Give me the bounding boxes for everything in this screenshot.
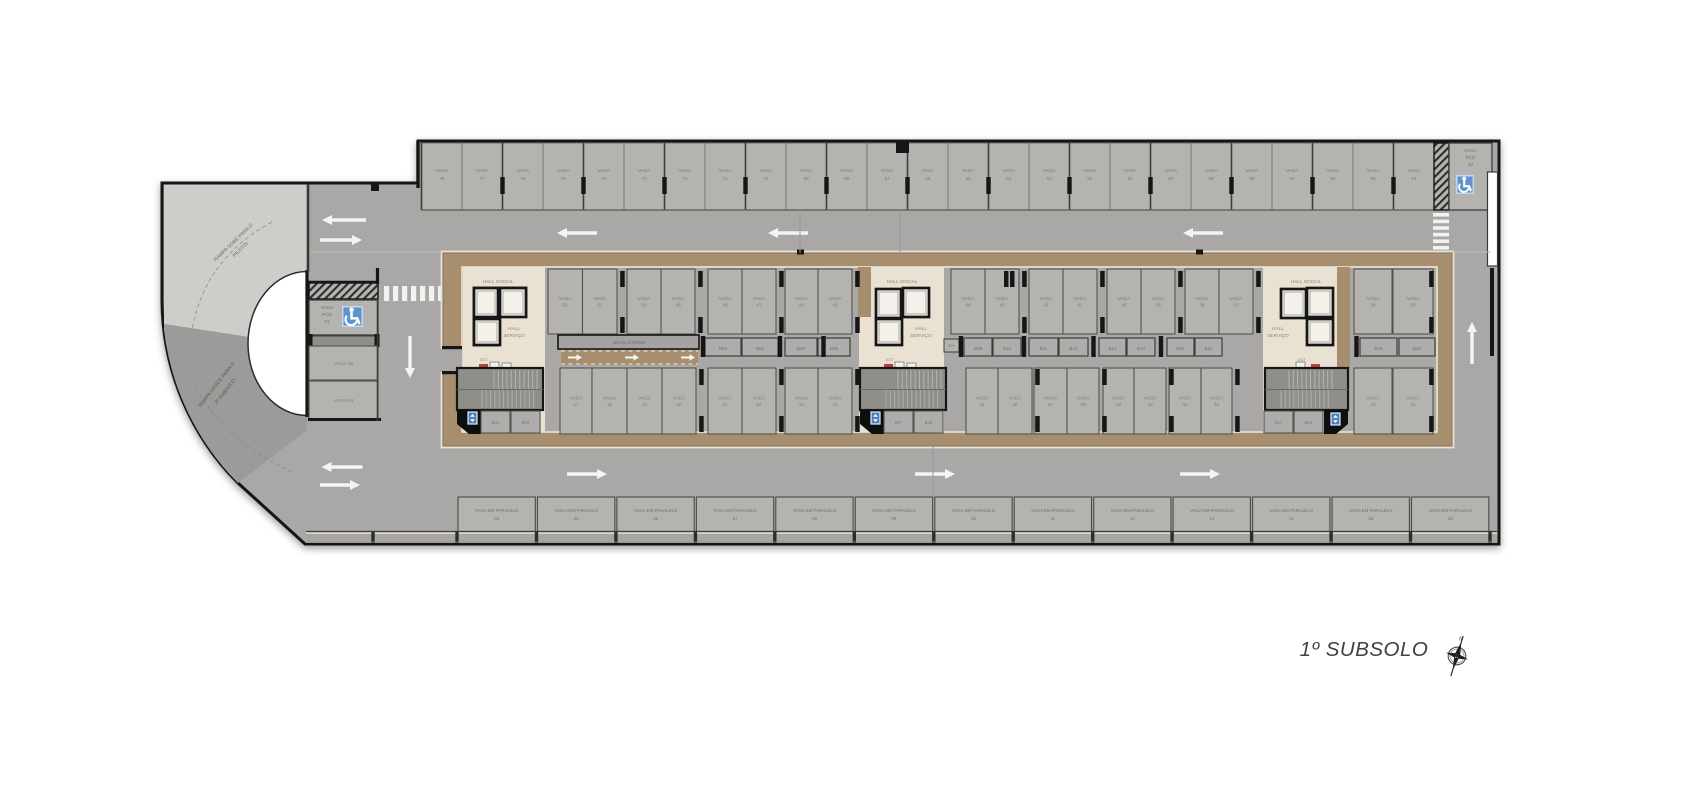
- svg-text:65: 65: [966, 176, 972, 181]
- svg-text:34: 34: [1410, 402, 1416, 407]
- svg-text:B15: B15: [1176, 346, 1185, 351]
- svg-text:VAGA: VAGA: [795, 396, 809, 401]
- svg-text:40: 40: [1121, 303, 1127, 308]
- svg-text:35: 35: [1410, 303, 1416, 308]
- svg-text:VAGA: VAGA: [1407, 396, 1421, 401]
- svg-text:B12: B12: [1069, 346, 1078, 351]
- svg-text:VAGA: VAGA: [795, 296, 809, 301]
- svg-text:24: 24: [832, 402, 838, 407]
- svg-text:VAGA: VAGA: [800, 168, 814, 173]
- svg-text:55: 55: [1371, 176, 1377, 181]
- svg-text:62: 62: [1087, 176, 1093, 181]
- svg-text:27: 27: [1048, 402, 1054, 407]
- svg-text:VAGA 03: VAGA 03: [334, 398, 354, 404]
- svg-text:21: 21: [722, 402, 728, 407]
- svg-text:01: 01: [324, 319, 330, 324]
- svg-text:11: 11: [1051, 516, 1056, 521]
- svg-text:VAGA: VAGA: [1083, 168, 1097, 173]
- svg-text:VAGA: VAGA: [476, 168, 490, 173]
- svg-text:39: 39: [1155, 303, 1161, 308]
- svg-text:BICICLETÁRIO: BICICLETÁRIO: [613, 339, 645, 345]
- svg-text:HALL SOCIAL: HALL SOCIAL: [1291, 279, 1322, 285]
- svg-text:VAGA: VAGA: [1112, 396, 1126, 401]
- svg-text:59: 59: [1209, 176, 1215, 181]
- svg-text:77: 77: [480, 176, 486, 181]
- svg-text:VAGA: VAGA: [1118, 296, 1132, 301]
- svg-text:VAGA: VAGA: [719, 396, 733, 401]
- svg-text:41: 41: [1077, 303, 1083, 308]
- svg-text:VAGA: VAGA: [1077, 396, 1091, 401]
- svg-text:VAGA: VAGA: [1205, 168, 1219, 173]
- svg-text:25: 25: [979, 402, 985, 407]
- svg-text:VAGA EM PARALELO: VAGA EM PARALELO: [952, 508, 996, 513]
- svg-text:VAGA: VAGA: [1367, 396, 1381, 401]
- svg-text:SPK: SPK: [948, 344, 956, 348]
- svg-text:VAGA: VAGA: [829, 296, 843, 301]
- svg-text:VAGA: VAGA: [638, 296, 652, 301]
- svg-text:22: 22: [756, 402, 762, 407]
- svg-text:60: 60: [1168, 176, 1174, 181]
- svg-text:61: 61: [1128, 176, 1134, 181]
- svg-text:SERVIÇO: SERVIÇO: [503, 333, 525, 339]
- svg-text:HALL SOCIAL: HALL SOCIAL: [483, 279, 514, 285]
- svg-text:B18: B18: [1305, 420, 1313, 425]
- svg-text:12: 12: [1130, 516, 1135, 521]
- svg-text:VAGA: VAGA: [1245, 168, 1259, 173]
- svg-text:B11: B11: [1040, 346, 1048, 351]
- svg-text:ECT: ECT: [1298, 358, 1306, 362]
- svg-text:71: 71: [723, 176, 729, 181]
- svg-text:VAGA EM PARALELO: VAGA EM PARALELO: [634, 508, 678, 513]
- svg-text:VAGA EM PARALELO: VAGA EM PARALELO: [1270, 508, 1314, 513]
- svg-text:VAGA: VAGA: [1144, 396, 1158, 401]
- svg-text:VAGA: VAGA: [1044, 396, 1058, 401]
- svg-text:VAGA: VAGA: [719, 168, 733, 173]
- svg-text:VAGA: VAGA: [673, 396, 687, 401]
- svg-text:13: 13: [1209, 516, 1214, 521]
- svg-text:37: 37: [1233, 303, 1239, 308]
- svg-text:78: 78: [439, 176, 445, 181]
- svg-text:42: 42: [1043, 303, 1049, 308]
- svg-text:VAGA: VAGA: [962, 168, 976, 173]
- svg-text:B06: B06: [830, 346, 839, 351]
- svg-text:54: 54: [1411, 176, 1417, 181]
- svg-text:18: 18: [607, 402, 613, 407]
- svg-text:VAGA EM PARALELO: VAGA EM PARALELO: [1111, 508, 1155, 513]
- svg-text:B20: B20: [1413, 346, 1422, 351]
- svg-text:70: 70: [763, 176, 769, 181]
- svg-text:51: 51: [597, 303, 603, 308]
- svg-text:VAGA: VAGA: [570, 396, 584, 401]
- svg-text:VAGA: VAGA: [759, 168, 773, 173]
- svg-text:VAGA: VAGA: [840, 168, 854, 173]
- svg-text:30: 30: [1147, 402, 1153, 407]
- svg-text:20: 20: [676, 402, 682, 407]
- svg-text:VAGA: VAGA: [321, 305, 334, 310]
- svg-text:VAGA: VAGA: [1464, 148, 1477, 153]
- svg-text:HALL: HALL: [915, 326, 927, 332]
- svg-text:VAGA: VAGA: [829, 396, 843, 401]
- svg-text:VAGA: VAGA: [597, 168, 611, 173]
- svg-text:VAGA: VAGA: [1407, 168, 1421, 173]
- svg-text:74: 74: [601, 176, 607, 181]
- svg-text:28: 28: [1080, 402, 1086, 407]
- svg-text:44: 44: [965, 303, 971, 308]
- svg-text:64: 64: [1006, 176, 1012, 181]
- svg-text:VAGA: VAGA: [881, 168, 895, 173]
- svg-text:VAGA: VAGA: [976, 396, 990, 401]
- svg-text:04: 04: [494, 516, 499, 521]
- svg-text:38: 38: [1199, 303, 1205, 308]
- svg-text:VAGA: VAGA: [603, 396, 617, 401]
- svg-text:VAGA: VAGA: [1196, 296, 1210, 301]
- svg-text:B08: B08: [925, 420, 933, 425]
- svg-text:VAGA: VAGA: [996, 296, 1010, 301]
- svg-text:B16: B16: [1204, 346, 1213, 351]
- svg-text:VAGA: VAGA: [1124, 168, 1138, 173]
- svg-text:VAGA: VAGA: [1367, 168, 1381, 173]
- svg-text:ECT: ECT: [480, 358, 488, 362]
- svg-text:VAGA: VAGA: [962, 296, 976, 301]
- svg-text:B14: B14: [1137, 346, 1146, 351]
- svg-text:16: 16: [1448, 516, 1453, 521]
- svg-text:45: 45: [832, 303, 838, 308]
- svg-text:26: 26: [1012, 402, 1018, 407]
- svg-text:33: 33: [1370, 402, 1376, 407]
- svg-text:B09: B09: [974, 346, 983, 351]
- svg-text:VAGA: VAGA: [516, 168, 530, 173]
- svg-text:75: 75: [561, 176, 567, 181]
- svg-text:VAGA: VAGA: [1179, 396, 1193, 401]
- svg-text:VAGA EM PARALELO: VAGA EM PARALELO: [713, 508, 757, 513]
- svg-text:VAGA: VAGA: [1164, 168, 1178, 173]
- svg-text:10: 10: [971, 516, 976, 521]
- svg-text:B04: B04: [756, 346, 765, 351]
- svg-text:VAGA: VAGA: [1407, 296, 1421, 301]
- svg-text:14: 14: [1289, 516, 1294, 521]
- svg-text:VAGA EM PARALELO: VAGA EM PARALELO: [793, 508, 837, 513]
- svg-text:VAGA EM PARALELO: VAGA EM PARALELO: [1031, 508, 1075, 513]
- svg-text:VAGA: VAGA: [1040, 296, 1054, 301]
- svg-text:VAGA: VAGA: [921, 168, 935, 173]
- svg-text:VAGA: VAGA: [638, 396, 652, 401]
- svg-text:VAGA: VAGA: [753, 396, 767, 401]
- svg-text:VAGA: VAGA: [593, 296, 607, 301]
- svg-text:VAGA: VAGA: [1210, 396, 1224, 401]
- svg-text:SERVIÇO: SERVIÇO: [1267, 333, 1289, 339]
- svg-text:VAGA: VAGA: [672, 296, 686, 301]
- svg-text:B01: B01: [492, 420, 500, 425]
- svg-text:46: 46: [799, 303, 805, 308]
- svg-text:VAGA: VAGA: [1326, 168, 1340, 173]
- svg-text:B13: B13: [1108, 346, 1117, 351]
- svg-text:VAGA EM PARALELO: VAGA EM PARALELO: [1349, 508, 1393, 513]
- svg-text:09: 09: [892, 516, 897, 521]
- svg-text:B03: B03: [719, 346, 728, 351]
- svg-text:31: 31: [1182, 402, 1188, 407]
- svg-text:VAGA: VAGA: [1230, 296, 1244, 301]
- svg-text:49: 49: [675, 303, 681, 308]
- svg-text:VAGA: VAGA: [1152, 296, 1166, 301]
- svg-text:PCD: PCD: [1466, 155, 1476, 160]
- svg-text:57: 57: [1290, 176, 1296, 181]
- svg-text:69: 69: [804, 176, 810, 181]
- svg-text:48: 48: [722, 303, 728, 308]
- svg-text:VAGA: VAGA: [1367, 296, 1381, 301]
- svg-text:VAGA: VAGA: [753, 296, 767, 301]
- svg-text:PCD: PCD: [322, 312, 332, 317]
- svg-text:68: 68: [844, 176, 850, 181]
- svg-text:VAGA EM PARALELO: VAGA EM PARALELO: [475, 508, 519, 513]
- svg-text:VAGA EM PARALELO: VAGA EM PARALELO: [554, 508, 598, 513]
- svg-text:VAGA: VAGA: [557, 168, 571, 173]
- svg-text:07: 07: [733, 516, 738, 521]
- svg-text:19: 19: [642, 402, 648, 407]
- svg-text:53: 53: [1468, 162, 1474, 167]
- svg-text:B17: B17: [1275, 420, 1283, 425]
- svg-text:VAGA EM PARALELO: VAGA EM PARALELO: [1428, 508, 1472, 513]
- svg-text:VAGA: VAGA: [678, 168, 692, 173]
- svg-text:1º SUBSOLO: 1º SUBSOLO: [1300, 638, 1429, 661]
- svg-text:29: 29: [1116, 402, 1122, 407]
- svg-text:HALL: HALL: [1272, 326, 1284, 332]
- svg-text:VAGA: VAGA: [1074, 296, 1088, 301]
- svg-text:43: 43: [999, 303, 1005, 308]
- svg-text:58: 58: [1249, 176, 1255, 181]
- svg-text:36: 36: [1370, 303, 1376, 308]
- svg-text:76: 76: [520, 176, 526, 181]
- svg-text:06: 06: [653, 516, 658, 521]
- svg-text:B07: B07: [895, 420, 903, 425]
- svg-text:VAGA: VAGA: [638, 168, 652, 173]
- svg-text:66: 66: [925, 176, 931, 181]
- svg-text:HALL: HALL: [508, 326, 520, 332]
- svg-text:32: 32: [1214, 402, 1220, 407]
- svg-text:72: 72: [682, 176, 688, 181]
- svg-text:50: 50: [641, 303, 647, 308]
- svg-text:17: 17: [573, 402, 579, 407]
- svg-text:63: 63: [1047, 176, 1053, 181]
- svg-text:52: 52: [563, 303, 569, 308]
- svg-text:VAGA: VAGA: [559, 296, 573, 301]
- svg-text:23: 23: [799, 402, 805, 407]
- svg-text:VAGA: VAGA: [1043, 168, 1057, 173]
- svg-text:B10: B10: [1003, 346, 1012, 351]
- svg-text:B02: B02: [522, 420, 530, 425]
- svg-text:ECT: ECT: [886, 358, 894, 362]
- svg-text:VAGA 02: VAGA 02: [334, 361, 354, 367]
- svg-text:56: 56: [1330, 176, 1336, 181]
- svg-text:15: 15: [1368, 516, 1373, 521]
- svg-text:VAGA: VAGA: [435, 168, 449, 173]
- svg-text:SERVIÇO: SERVIÇO: [910, 333, 932, 339]
- svg-text:HALL SOCIAL: HALL SOCIAL: [887, 279, 918, 285]
- svg-text:05: 05: [574, 516, 579, 521]
- svg-text:VAGA: VAGA: [1009, 396, 1023, 401]
- svg-text:67: 67: [885, 176, 891, 181]
- svg-text:VAGA EM PARALELO: VAGA EM PARALELO: [872, 508, 916, 513]
- svg-text:B19: B19: [1374, 346, 1383, 351]
- svg-text:VAGA: VAGA: [1286, 168, 1300, 173]
- svg-text:B05: B05: [797, 346, 806, 351]
- svg-text:47: 47: [756, 303, 762, 308]
- svg-text:VAGA: VAGA: [1002, 168, 1016, 173]
- svg-text:VAGA EM PARALELO: VAGA EM PARALELO: [1190, 508, 1234, 513]
- svg-text:08: 08: [812, 516, 817, 521]
- svg-text:VAGA: VAGA: [719, 296, 733, 301]
- svg-text:73: 73: [642, 176, 648, 181]
